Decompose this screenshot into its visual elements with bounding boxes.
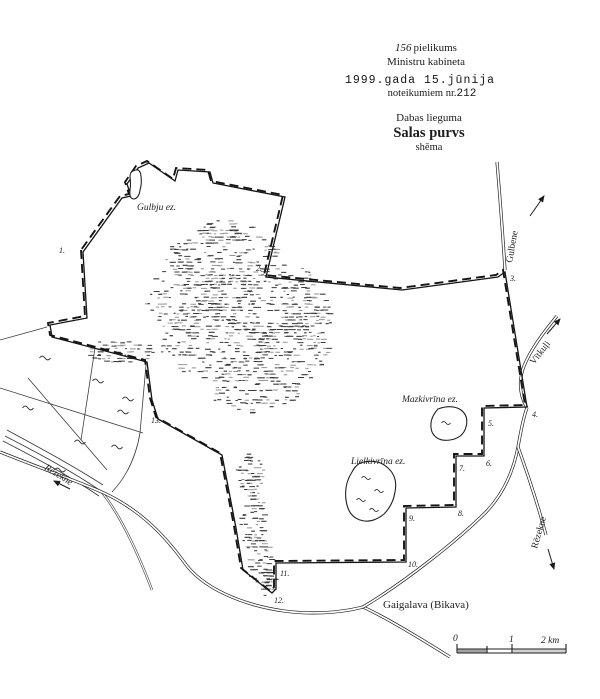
boundary-point: 13. [151, 416, 161, 425]
gulbju-lake [130, 170, 142, 199]
boundary-point: 10. [408, 560, 418, 569]
annex-line: 156pielikums [395, 42, 457, 54]
boundary-point: 8. [458, 509, 464, 518]
gulbene-label: Gulbene [505, 230, 520, 263]
bog-texture [88, 221, 333, 596]
annex-word: pielikums [414, 42, 457, 54]
scale-label-1: 1 [509, 635, 514, 645]
scale-fill-segment [512, 650, 566, 653]
boundary-point: 3. [509, 274, 516, 283]
boundary-dashed-line [48, 161, 525, 591]
parcel-line [28, 378, 107, 470]
bog-stipple-dense [88, 221, 333, 596]
map-canvas: 156pielikums Ministru kabineta 1999.gada… [0, 0, 600, 699]
mazkivrina-lake-label: Mazkivrīna ez. [401, 395, 458, 405]
rezekne-river-label: Rēzekne [42, 463, 75, 489]
mazkivrina-lake [431, 407, 467, 441]
header-block: 156pielikums Ministru kabineta 1999.gada… [345, 42, 495, 153]
roads [0, 162, 557, 657]
lielkivrina-lake [346, 461, 396, 521]
bog-stipple-light [90, 221, 331, 589]
annex-number: 156 [395, 42, 412, 54]
page-title: Salas purvs [393, 125, 465, 141]
boundary-point: 7. [459, 464, 465, 473]
gulbene-arrow-icon [530, 196, 544, 216]
regulation-number: 212 [457, 88, 477, 100]
lielkivrina-lake-label: Lielkivrīna ez. [350, 457, 405, 467]
rivers [3, 430, 152, 590]
parcel-line [81, 348, 95, 440]
rezekne-road-arrow-icon [548, 549, 554, 569]
regulation-prefix: noteikumiem nr. [388, 88, 457, 99]
gaigalava-label: Gaigalava (Bikava) [383, 599, 469, 611]
boundary-point: 6. [486, 459, 492, 468]
rezekne-river-line [5, 436, 101, 491]
boundary-point: 12. [274, 596, 284, 605]
date-line: 1999.gada 15.jūnija [345, 74, 495, 87]
boundary-point: 2. [256, 264, 262, 273]
scale-label-2km: 2 km [541, 636, 559, 646]
map-page: 156pielikums Ministru kabineta 1999.gada… [0, 0, 600, 699]
boundary-point: 5. [488, 419, 494, 428]
parcel-line [0, 327, 47, 340]
category-line: Dabas lieguma [396, 112, 462, 124]
scale-bar: 0 1 2 km [453, 634, 566, 653]
boundary-solid-line [50, 163, 527, 593]
reserve-boundary [48, 161, 527, 593]
ministry-line: Ministru kabineta [387, 56, 465, 68]
boundary-point: 11. [280, 569, 289, 578]
scale-label-0: 0 [453, 634, 458, 644]
doc-type-line: shēma [416, 142, 443, 153]
boundary-point: 9. [409, 514, 415, 523]
gulbene-road-inner [497, 162, 505, 270]
boundary-point: 1. [59, 246, 65, 255]
regulation-line: noteikumiem nr.212 [388, 88, 477, 100]
gulbju-lake-label: Gulbju ez. [137, 203, 176, 213]
place-labels: Gulbene Vītkuļi Rēzekne Rēzekne Gaigalav… [42, 230, 554, 611]
scale-fill-segment [457, 650, 487, 653]
lakes: Gulbju ez. Mazkivrīna ez. Lielkivrīna ez… [130, 170, 467, 521]
boundary-point: 4. [532, 410, 538, 419]
